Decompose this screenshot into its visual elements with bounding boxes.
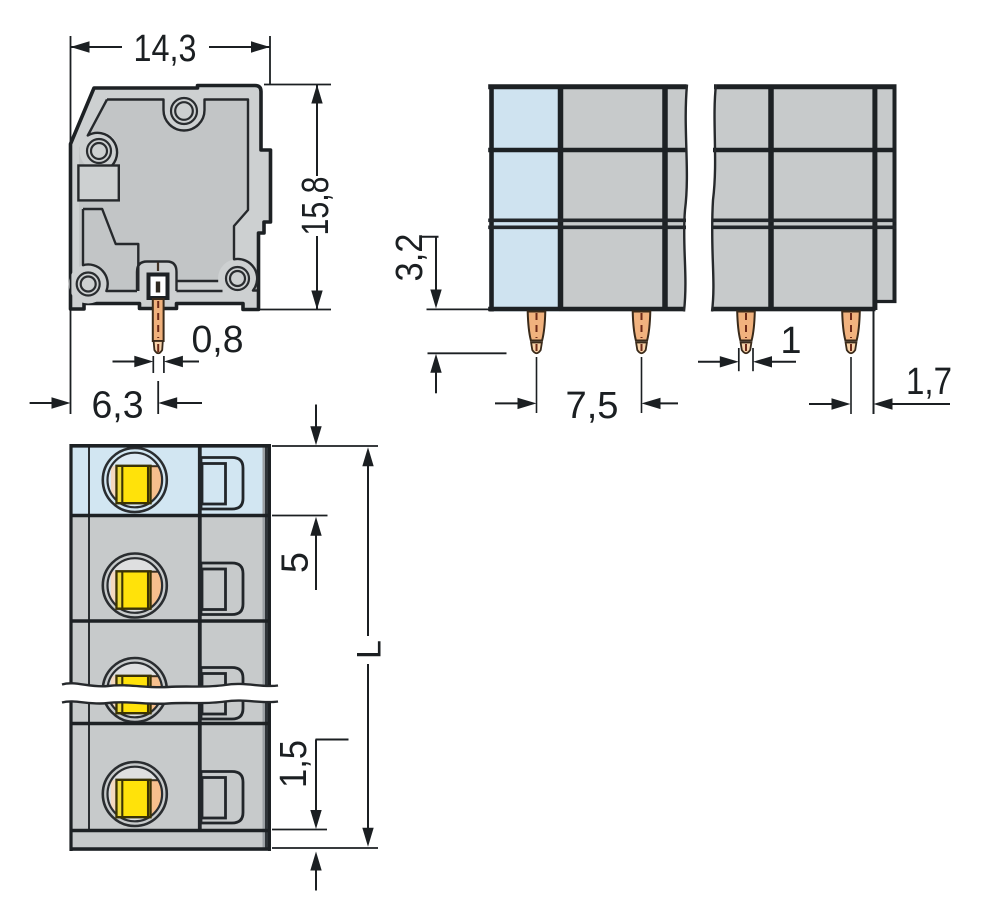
svg-text:3,2: 3,2 (389, 234, 431, 282)
svg-text:1,7: 1,7 (906, 361, 952, 403)
svg-text:5: 5 (275, 552, 317, 573)
svg-text:14,3: 14,3 (134, 28, 197, 70)
svg-text:L: L (351, 640, 389, 659)
svg-text:1: 1 (780, 320, 801, 362)
svg-text:0,8: 0,8 (192, 319, 244, 361)
svg-text:6,3: 6,3 (92, 385, 144, 427)
svg-text:15,8: 15,8 (295, 177, 337, 236)
svg-text:7,5: 7,5 (566, 385, 619, 427)
svg-text:1,5: 1,5 (273, 740, 315, 788)
